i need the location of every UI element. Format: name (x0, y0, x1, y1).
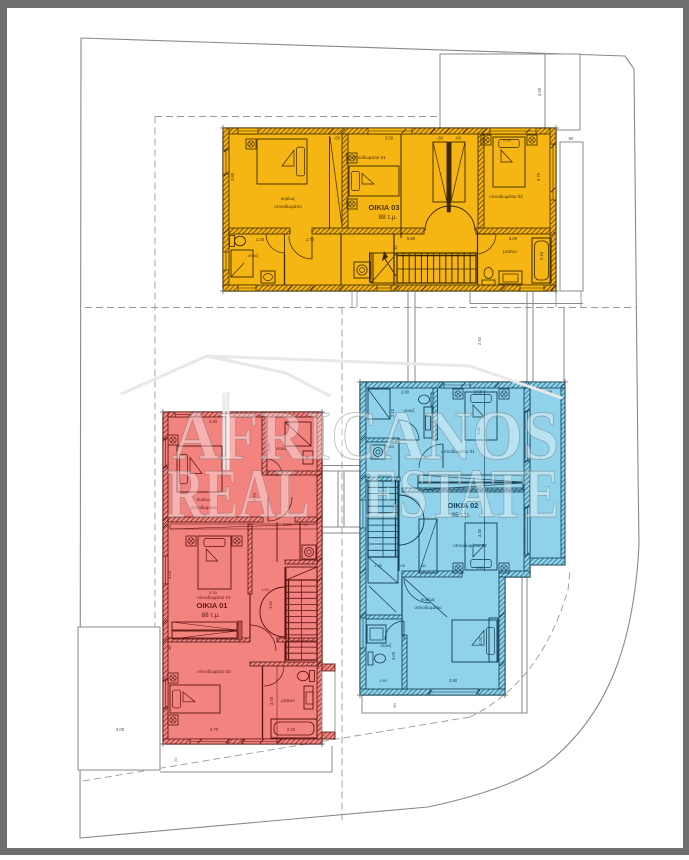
svg-text:2.80: 2.80 (401, 390, 410, 395)
svg-text:2.10: 2.10 (287, 727, 296, 732)
svg-text:υπνοδωμάτιο: υπνοδωμάτιο (414, 604, 442, 610)
svg-text:υπνοδωμάτιο 02: υπνοδωμάτιο 02 (489, 193, 523, 199)
svg-text:1.50: 1.50 (379, 678, 388, 683)
svg-text:1.05: 1.05 (374, 563, 383, 568)
svg-text:0.90: 0.90 (503, 139, 510, 143)
svg-text:3.05: 3.05 (116, 727, 125, 732)
svg-text:2.92: 2.92 (477, 336, 482, 345)
svg-text:κυρίως: κυρίως (281, 196, 296, 201)
svg-text:.40: .40 (394, 245, 398, 250)
svg-text:90: 90 (569, 136, 574, 141)
svg-text:3.00: 3.00 (391, 651, 396, 660)
svg-text:ντουζ: ντουζ (248, 253, 259, 258)
svg-text:.60: .60 (437, 136, 443, 141)
svg-text:OIKIA 03: OIKIA 03 (369, 203, 400, 212)
svg-text:.60: .60 (455, 136, 461, 141)
svg-text:υπνοδωμάτιο 02: υπνοδωμάτιο 02 (453, 542, 487, 548)
svg-text:μπάνιο: μπάνιο (503, 249, 517, 254)
svg-text:κυρίως: κυρίως (421, 597, 436, 602)
svg-text:3.00: 3.00 (537, 87, 542, 96)
svg-text:υπνοδωμάτιο 02: υπνοδωμάτιο 02 (197, 668, 231, 674)
svg-text:μπάνιο: μπάνιο (281, 698, 295, 703)
svg-text:3.70: 3.70 (536, 172, 541, 181)
svg-text:3.50: 3.50 (474, 390, 483, 395)
svg-text:88 τ.μ.: 88 τ.μ. (202, 612, 221, 619)
svg-text:.60: .60 (420, 563, 426, 568)
svg-text:OIKIA 01: OIKIA 01 (197, 601, 228, 610)
svg-text:1.70: 1.70 (306, 237, 315, 242)
svg-text:ντουζ: ντουζ (381, 643, 392, 648)
svg-text:3.80: 3.80 (230, 172, 235, 181)
svg-text:1.05: 1.05 (261, 588, 268, 592)
svg-text:2.10: 2.10 (539, 251, 544, 260)
svg-text:4.00: 4.00 (478, 636, 483, 645)
svg-text:3.80: 3.80 (449, 678, 458, 683)
svg-text:3.70: 3.70 (210, 727, 219, 732)
svg-text:.60: .60 (392, 702, 397, 708)
svg-text:ESTATE: ESTATE (365, 456, 559, 533)
svg-text:υπνοδωμάτιο: υπνοδωμάτιο (274, 203, 302, 209)
svg-text:.60: .60 (168, 645, 172, 650)
svg-text:5.80: 5.80 (407, 236, 416, 241)
svg-text:3.50: 3.50 (167, 570, 172, 579)
svg-text:88 τ.μ.: 88 τ.μ. (379, 214, 398, 221)
svg-text:3.00: 3.00 (269, 696, 274, 705)
svg-text:υπνοδωμάτιο 01: υπνοδωμάτιο 01 (197, 594, 231, 600)
svg-text:3.50: 3.50 (476, 565, 485, 570)
svg-text:.60: .60 (334, 136, 340, 141)
svg-text:2.20: 2.20 (256, 237, 265, 242)
svg-text:1.05: 1.05 (397, 563, 406, 568)
svg-text:υπνοδωμάτιο 01: υπνοδωμάτιο 01 (352, 154, 386, 160)
svg-text:3.60: 3.60 (269, 601, 273, 608)
svg-text:3.00: 3.00 (509, 236, 518, 241)
svg-text:REAL: REAL (167, 456, 310, 533)
svg-text:3.50: 3.50 (385, 136, 394, 141)
svg-text:.50: .50 (174, 757, 178, 762)
